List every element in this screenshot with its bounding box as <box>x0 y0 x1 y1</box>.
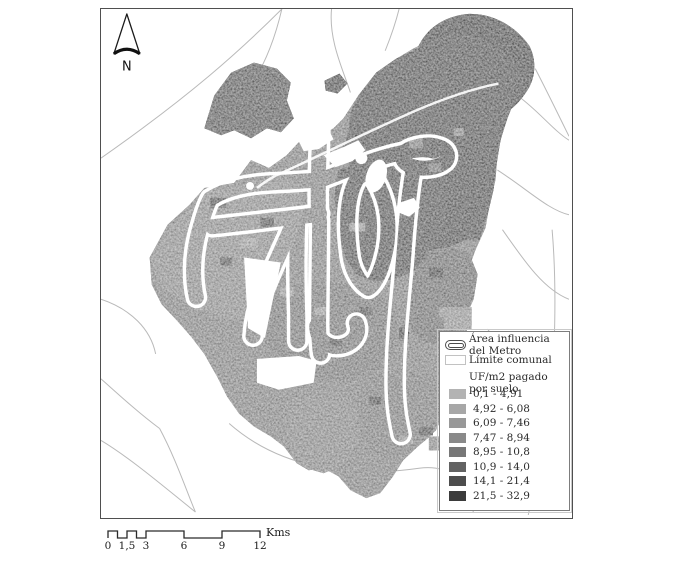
scale-bar-path <box>108 531 260 538</box>
legend-class-row: 6,09 - 7,46 <box>445 416 565 431</box>
legend-item-metro-area: Área influencia del Metro <box>445 338 565 352</box>
legend-class-row: 14,1 - 21,4 <box>445 474 565 489</box>
legend-class-row: 8,95 - 10,8 <box>445 445 565 460</box>
legend-class-row: 7,47 - 8,94 <box>445 431 565 446</box>
legend-ramp-title: UF/m2 pagado por suelo <box>469 371 565 384</box>
scale-tick-label: 6 <box>181 540 188 552</box>
class-label: 21,5 - 32,9 <box>473 490 530 502</box>
scale-unit-label: Kms <box>266 526 290 539</box>
comuna-limit-icon <box>445 355 466 365</box>
legend-box: Área influencia del Metro Límite comunal… <box>439 331 570 511</box>
class-label: 6,09 - 7,46 <box>473 417 530 429</box>
class-label: 4,92 - 6,08 <box>473 403 530 415</box>
class-swatch <box>449 389 466 399</box>
north-label: N <box>122 60 132 75</box>
class-swatch <box>449 447 466 457</box>
legend-class-row: 21,5 - 32,9 <box>445 489 565 504</box>
class-swatch <box>449 433 466 443</box>
class-swatch <box>449 491 466 501</box>
scale-tick-label: 3 <box>143 540 150 552</box>
legend-item-comuna-label: Límite comunal <box>469 354 552 366</box>
scale-tick-label: 12 <box>253 540 266 552</box>
legend-classes: 0,1 - 4,914,92 - 6,086,09 - 7,467,47 - 8… <box>445 387 565 503</box>
class-label: 14,1 - 21,4 <box>473 475 530 487</box>
scale-tick-label: 0 <box>105 540 112 552</box>
class-label: 8,95 - 10,8 <box>473 446 530 458</box>
legend-class-row: 4,92 - 6,08 <box>445 402 565 417</box>
legend-class-row: 10,9 - 14,0 <box>445 460 565 475</box>
scale-tick-label: 9 <box>219 540 226 552</box>
class-label: 0,1 - 4,91 <box>473 388 523 400</box>
class-swatch <box>449 476 466 486</box>
metro-area-icon <box>445 340 466 350</box>
class-swatch <box>449 404 466 414</box>
class-swatch <box>449 462 466 472</box>
class-label: 10,9 - 14,0 <box>473 461 530 473</box>
legend-item-comuna-limit: Límite comunal <box>445 353 565 367</box>
legend-class-row: 0,1 - 4,91 <box>445 387 565 402</box>
scale-tick-label: 1,5 <box>119 540 136 552</box>
class-swatch <box>449 418 466 428</box>
class-label: 7,47 - 8,94 <box>473 432 530 444</box>
map-page: N Área influencia del Metro Límite comun… <box>0 0 679 570</box>
